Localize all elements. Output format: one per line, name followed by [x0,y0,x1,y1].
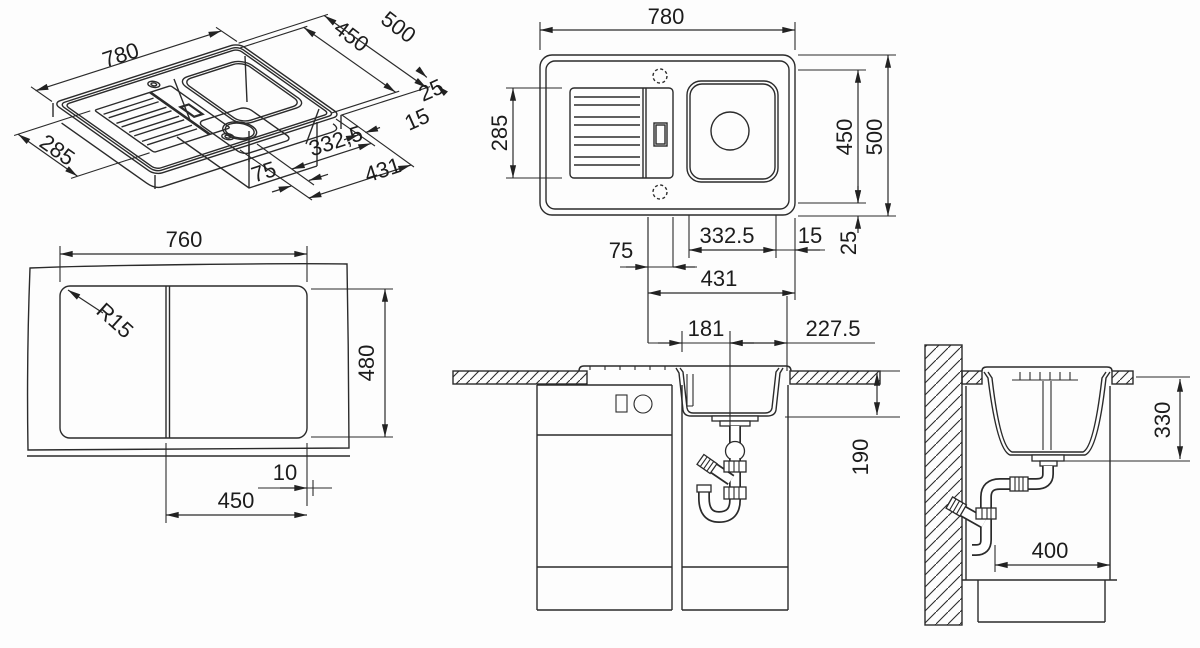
sink-rim-profile [579,366,791,371]
dim-label-cutout-height: 480 [354,345,379,382]
sink-technical-drawing: 780 285 450 500 25 15 332,5 75 4 [0,0,1200,648]
dim-label-iso-rim-back: 25 [415,74,448,107]
cutout-view: R15 760 480 10 450 [27,227,393,523]
drain-circle [711,112,749,150]
dim-label-top-bowl-length: 332.5 [699,223,754,248]
bowl-section-inner [988,372,1106,452]
dim-label-top-rim: 25 [836,231,861,255]
dim-label-side-clearance: 330 [1150,402,1175,439]
countertop-right [790,371,880,384]
strainer-detail [1012,372,1078,380]
dim-label-iso-bowl-section: 431 [361,152,404,187]
dim-label-iso-board-width: 285 [35,129,79,171]
divider-line [643,88,646,178]
dim-label-top-bowl-section: 431 [701,266,738,291]
tap-hole-top [145,80,162,88]
front-section-view: 181 227.5 190 [453,217,900,610]
dim-label-top-board-width: 285 [487,115,512,152]
overflow-channel [687,374,693,406]
counter-right-piece [1112,371,1133,384]
dim-label-iso-rim-edge: 15 [401,103,434,136]
dim-label-cutout-radius: R15 [92,298,139,344]
wall [925,345,962,625]
iso-dimensions: 780 285 450 500 25 15 332,5 75 4 [14,6,447,200]
dim-label-front-drain-left: 181 [688,316,725,341]
cabinet-handle [616,395,627,412]
dim-label-top-length: 780 [648,4,685,29]
side-dimensions: 330 400 [995,377,1190,572]
dim-label-top-edge: 15 [798,223,822,248]
bowl-section-outer [984,372,1110,455]
drain-trap-side [946,455,1064,550]
dim-label-front-bowl-depth: 190 [848,439,873,476]
sink-top-face [53,43,341,175]
cutout-divider [166,286,170,438]
isometric-view: 780 285 450 500 25 15 332,5 75 4 [14,6,447,200]
counter-left-piece [962,371,982,384]
sink-rim-side [982,367,1112,371]
dim-label-top-divider: 75 [609,238,633,263]
cabinet-left [537,385,672,610]
dim-label-cutout-offset: 10 [273,460,297,485]
standpipe [1043,381,1051,450]
ball-joint [726,442,745,461]
technical-drawing-page: 780 285 450 500 25 15 332,5 75 4 [0,0,1200,648]
dim-label-front-drain-right: 227.5 [805,316,860,341]
dim-label-iso-length: 780 [99,37,142,72]
dim-label-side-base-depth: 400 [1032,538,1069,563]
cabinet-knob [634,395,652,413]
countertop-left [453,371,587,384]
bowl-outline [687,81,778,182]
tap-hole-top-dashed [653,69,667,83]
countertop-slab [28,264,349,450]
drainboard-ribs-top [574,97,640,165]
dim-label-iso-width: 500 [376,6,420,48]
top-view: 780 285 450 500 25 332.5 15 75 4 [487,4,896,343]
dim-label-top-width: 500 [862,119,887,156]
dim-label-cutout-bowl-cut: 450 [218,488,255,513]
front-dimensions: 181 227.5 190 [648,217,900,475]
dim-label-top-inner-width: 450 [832,119,857,156]
dim-label-iso-divider: 75 [248,156,279,187]
tap-hole-bottom-dashed [653,185,667,199]
dim-label-cutout-width: 760 [166,227,203,252]
drain-trap-front [697,416,758,517]
side-section-view: 330 400 [925,345,1190,625]
cutout-dimensions: R15 760 480 10 450 [60,227,393,523]
drainboard [94,86,230,153]
